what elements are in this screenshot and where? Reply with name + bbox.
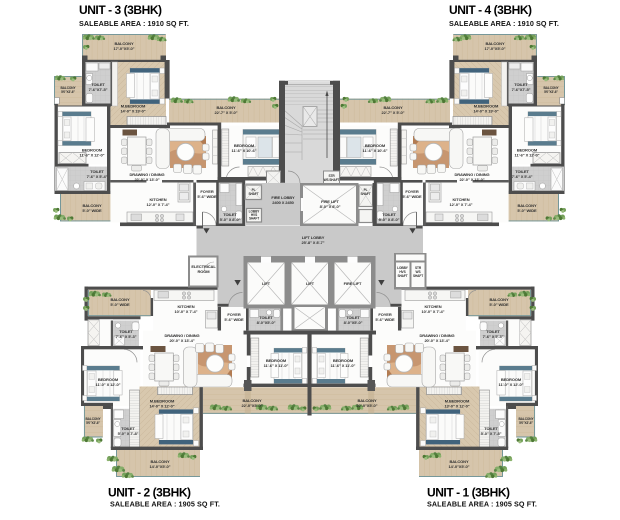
svg-text:5'-6" WIDE: 5'-6" WIDE: [375, 317, 395, 322]
svg-text:10'-0" X 7'-4": 10'-0" X 7'-4": [175, 309, 198, 314]
svg-text:5'0"X3'-6": 5'0"X3'-6": [61, 90, 75, 94]
svg-text:LIFT: LIFT: [262, 281, 271, 286]
svg-text:5'-0" X 7'-8": 5'-0" X 7'-8": [481, 431, 502, 436]
svg-text:8'-0"X5'-0": 8'-0"X5'-0": [344, 320, 363, 325]
svg-text:LIFT: LIFT: [306, 281, 315, 286]
svg-text:5'0"X3'-6": 5'0"X3'-6": [519, 421, 533, 425]
svg-text:SHAFT: SHAFT: [248, 192, 258, 196]
svg-text:7'-6" X 5'-4": 7'-6" X 5'-4": [512, 174, 533, 179]
svg-text:ROOM: ROOM: [197, 269, 210, 274]
svg-text:25'-8" X 8'-7": 25'-8" X 8'-7": [302, 240, 325, 245]
svg-text:UNIT - 2 (3BHK): UNIT - 2 (3BHK): [108, 486, 191, 500]
svg-text:11'-6" X 10'-6": 11'-6" X 10'-6": [363, 148, 388, 153]
svg-text:14'-0" X 19'-0": 14'-0" X 19'-0": [473, 109, 498, 114]
svg-text:5'-0" WIDE: 5'-0" WIDE: [489, 302, 509, 307]
svg-text:14'-0"X5'-0": 14'-0"X5'-0": [449, 464, 470, 469]
svg-text:11'-0" X 12'-0": 11'-0" X 12'-0": [96, 382, 121, 387]
svg-text:5'-6" WIDE: 5'-6" WIDE: [197, 194, 217, 199]
svg-text:5'0"X3'-6": 5'0"X3'-6": [86, 421, 100, 425]
svg-text:11'-6" X 11'-0": 11'-6" X 11'-0": [331, 363, 356, 368]
svg-text:22'-7" X 5'-0": 22'-7" X 5'-0": [215, 110, 238, 115]
svg-text:5'-0" X 7'-8": 5'-0" X 7'-8": [118, 431, 139, 436]
svg-text:7'-6" X 5'-4": 7'-6" X 5'-4": [87, 174, 108, 179]
svg-text:UNIT - 1 (3BHK): UNIT - 1 (3BHK): [427, 486, 510, 500]
svg-text:8'-0" X 8'-0": 8'-0" X 8'-0": [320, 204, 341, 209]
svg-text:11'-0" X 12'-0": 11'-0" X 12'-0": [499, 382, 524, 387]
svg-text:22'-0" X 13'-0": 22'-0" X 13'-0": [459, 177, 484, 182]
svg-text:SHAFT: SHAFT: [413, 274, 423, 278]
svg-text:SHAFT: SHAFT: [397, 274, 407, 278]
svg-text:5'-0" X 8'-0": 5'-0" X 8'-0": [220, 217, 241, 222]
svg-text:14'-0" X 12'-0": 14'-0" X 12'-0": [149, 404, 174, 409]
svg-text:7'-6"X7'-5": 7'-6"X7'-5": [89, 87, 108, 92]
svg-text:2400 X 2450: 2400 X 2450: [272, 200, 294, 205]
svg-text:22'-0"X5'-0": 22'-0"X5'-0": [242, 403, 263, 408]
svg-text:22'-0"X5'-0": 22'-0"X5'-0": [357, 403, 378, 408]
svg-text:5'-0" WIDE: 5'-0" WIDE: [110, 302, 130, 307]
svg-text:SALEABLE AREA : 1910 SQ FT.: SALEABLE AREA : 1910 SQ FT.: [449, 19, 559, 28]
svg-text:20'-0" X 13'-4": 20'-0" X 13'-4": [424, 338, 449, 343]
svg-text:11'-6" X 12'-0": 11'-6" X 12'-0": [515, 153, 540, 158]
svg-text:5'-0" WIDE: 5'-0" WIDE: [82, 208, 102, 213]
svg-text:17'-0"X5'-0": 17'-0"X5'-0": [485, 46, 506, 51]
svg-text:14'-0"X5'-0": 14'-0"X5'-0": [150, 464, 171, 469]
svg-text:12'-0" X 7'-4": 12'-0" X 7'-4": [147, 202, 170, 207]
svg-text:5'-6" WIDE: 5'-6" WIDE: [402, 194, 422, 199]
svg-text:5'-0" X 8'-0": 5'-0" X 8'-0": [379, 217, 400, 222]
svg-text:22'-0" X 13'-0": 22'-0" X 13'-0": [134, 177, 159, 182]
svg-text:17'-0"X5'-0": 17'-0"X5'-0": [114, 46, 135, 51]
svg-text:FIRE LIFT: FIRE LIFT: [344, 281, 362, 286]
svg-text:UNIT - 4 (3BHK): UNIT - 4 (3BHK): [449, 3, 532, 17]
svg-text:22'-7" X 5'-0": 22'-7" X 5'-0": [382, 110, 405, 115]
svg-text:5'-6" WIDE: 5'-6" WIDE: [224, 317, 244, 322]
svg-text:20'-0" X 13'-4": 20'-0" X 13'-4": [169, 338, 194, 343]
svg-text:7'-6" X 5'-3": 7'-6" X 5'-3": [116, 334, 137, 339]
svg-text:UNIT - 3 (3BHK): UNIT - 3 (3BHK): [79, 3, 162, 17]
svg-text:5'0"X3'-6": 5'0"X3'-6": [544, 90, 558, 94]
svg-text:7'-6" X 5'-3": 7'-6" X 5'-3": [483, 334, 504, 339]
svg-text:11'-6" X 10'-6": 11'-6" X 10'-6": [232, 148, 257, 153]
svg-text:5'-0" WIDE: 5'-0" WIDE: [517, 208, 537, 213]
svg-text:13'-0" X 12'-0": 13'-0" X 12'-0": [444, 404, 469, 409]
svg-text:SALEABLE AREA : 1905 SQ FT.: SALEABLE AREA : 1905 SQ FT.: [427, 500, 537, 509]
svg-text:11'-6" X 12'-0": 11'-6" X 12'-0": [80, 153, 105, 158]
svg-text:WS SHAFT: WS SHAFT: [324, 178, 340, 182]
svg-text:12'-0" X 7'-4": 12'-0" X 7'-4": [450, 202, 473, 207]
svg-text:7'-6"X7'-5": 7'-6"X7'-5": [512, 87, 531, 92]
svg-text:8'-0"X5'-0": 8'-0"X5'-0": [257, 320, 276, 325]
svg-text:10'-0" X 7'-4": 10'-0" X 7'-4": [422, 309, 445, 314]
svg-text:SALEABLE AREA : 1905 SQ FT.: SALEABLE AREA : 1905 SQ FT.: [110, 500, 220, 509]
svg-text:SALEABLE AREA : 1910 SQ FT.: SALEABLE AREA : 1910 SQ FT.: [79, 19, 189, 28]
svg-text:11'-6" X 11'-0": 11'-6" X 11'-0": [264, 363, 289, 368]
svg-text:14'-0" X 19'-0": 14'-0" X 19'-0": [120, 109, 145, 114]
svg-text:SHAFT: SHAFT: [360, 192, 370, 196]
svg-text:SHAFT: SHAFT: [249, 217, 259, 221]
